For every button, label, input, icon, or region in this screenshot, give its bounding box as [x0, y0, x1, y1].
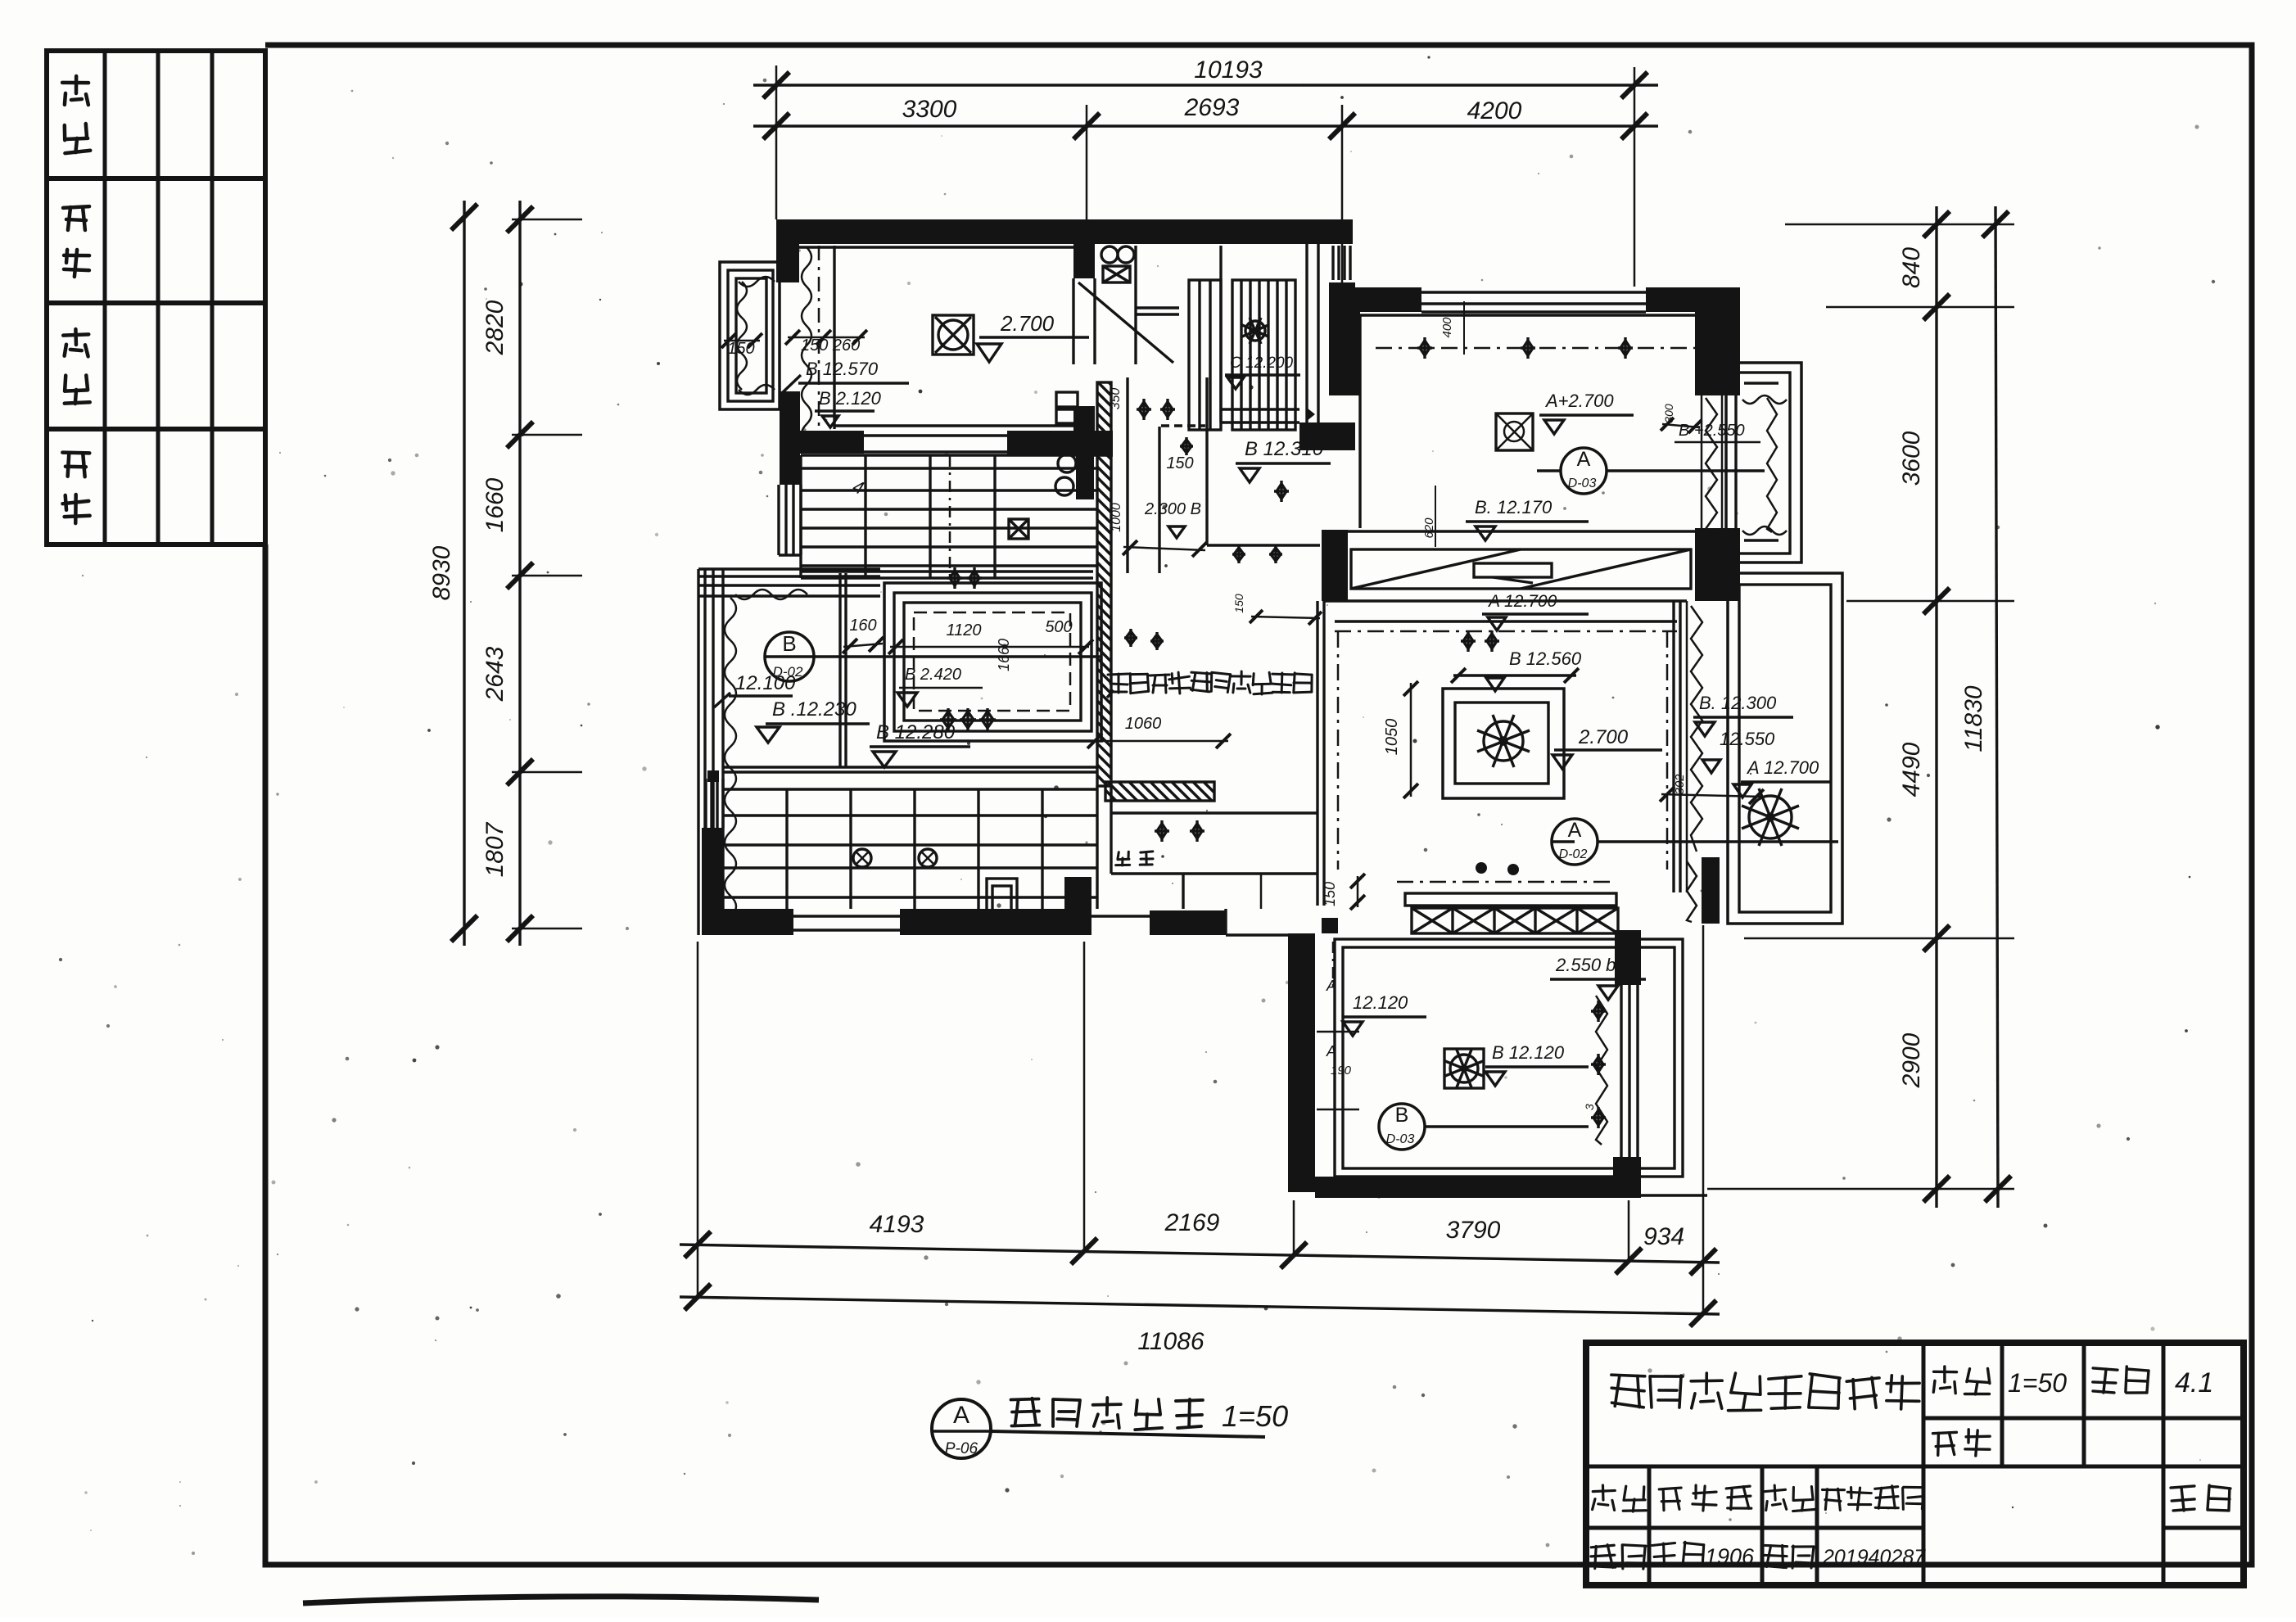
svg-text:12.120: 12.120: [1353, 992, 1408, 1013]
svg-text:P-06: P-06: [945, 1440, 979, 1457]
svg-text:3790: 3790: [1446, 1217, 1501, 1244]
svg-text:C 12.200: C 12.200: [1230, 355, 1294, 372]
svg-text:2169: 2169: [1164, 1209, 1220, 1236]
svg-text:1120: 1120: [946, 621, 981, 639]
svg-text:B +2.550: B +2.550: [1679, 422, 1745, 440]
svg-text:D-03: D-03: [1568, 477, 1597, 490]
svg-text:2.300 B: 2.300 B: [1144, 500, 1201, 518]
svg-text:12.100: 12.100: [735, 672, 796, 694]
svg-text:4490: 4490: [1898, 742, 1925, 797]
svg-text:A: A: [953, 1402, 969, 1429]
svg-text:B 12.570: B 12.570: [806, 359, 879, 379]
svg-text:3: 3: [1583, 1104, 1596, 1110]
svg-text:2693: 2693: [1184, 94, 1240, 121]
svg-text:2643: 2643: [481, 646, 508, 702]
svg-text:8930: 8930: [428, 545, 455, 600]
svg-text:D-02: D-02: [1559, 847, 1588, 861]
svg-text:190: 190: [1331, 1064, 1352, 1078]
svg-text:150: 150: [1166, 454, 1193, 472]
svg-text:1807: 1807: [481, 821, 508, 877]
svg-text:500: 500: [1045, 618, 1072, 636]
svg-text:1050: 1050: [1383, 719, 1401, 756]
svg-text:11830: 11830: [1960, 685, 1987, 752]
svg-text:2900: 2900: [1898, 1032, 1925, 1088]
svg-text:B 12.120: B 12.120: [1492, 1042, 1565, 1063]
svg-text:4200: 4200: [1467, 97, 1522, 124]
svg-text:A: A: [1326, 978, 1336, 994]
svg-text:150: 150: [1232, 594, 1245, 613]
svg-text:4193: 4193: [870, 1211, 924, 1238]
svg-text:160: 160: [849, 617, 876, 635]
svg-text:2.700: 2.700: [1000, 311, 1055, 336]
svg-text:2820: 2820: [481, 300, 508, 355]
svg-text:B: B: [1395, 1104, 1409, 1127]
svg-text:840: 840: [1898, 247, 1925, 288]
svg-text:A: A: [1577, 448, 1591, 471]
svg-text:150 260: 150 260: [801, 337, 860, 355]
svg-text:A 12.700: A 12.700: [1746, 757, 1819, 778]
svg-text:B: B: [782, 631, 796, 656]
svg-text:A: A: [1568, 819, 1582, 842]
svg-text:B 12.560: B 12.560: [1509, 648, 1582, 669]
svg-text:4.1: 4.1: [2175, 1367, 2213, 1398]
svg-text:302: 302: [1673, 774, 1687, 795]
svg-text:B 2.420: B 2.420: [905, 666, 961, 684]
svg-text:1906: 1906: [1705, 1544, 1755, 1569]
svg-text:1=50: 1=50: [1222, 1399, 1288, 1433]
svg-text:11086: 11086: [1137, 1328, 1204, 1355]
svg-text:620: 620: [1422, 517, 1436, 539]
svg-text:1=50: 1=50: [2008, 1368, 2067, 1398]
svg-text:D-03: D-03: [1386, 1132, 1415, 1146]
svg-text:A+2.700: A+2.700: [1544, 391, 1614, 411]
svg-text:400: 400: [1440, 317, 1454, 338]
svg-text:2.550 b: 2.550 b: [1555, 955, 1616, 975]
svg-text:3600: 3600: [1898, 431, 1925, 486]
svg-text:150: 150: [1322, 882, 1338, 906]
svg-text:2.700: 2.700: [1578, 726, 1629, 748]
svg-text:3300: 3300: [902, 96, 957, 123]
svg-text:1060: 1060: [1125, 715, 1162, 733]
svg-text:B 12.310: B 12.310: [1245, 438, 1324, 460]
svg-text:A 12.700: A 12.700: [1487, 592, 1557, 611]
svg-text:A: A: [1326, 1043, 1336, 1059]
svg-text:1660: 1660: [996, 639, 1012, 671]
svg-text:201940287: 201940287: [1822, 1546, 1926, 1569]
svg-text:150: 150: [727, 340, 754, 358]
svg-text:B .12.230: B .12.230: [772, 698, 856, 721]
svg-text:1660: 1660: [481, 477, 508, 532]
svg-text:934: 934: [1643, 1223, 1684, 1250]
svg-text:B 2.120: B 2.120: [819, 388, 882, 409]
svg-text:B. 12.170: B. 12.170: [1475, 497, 1553, 517]
svg-text:10193: 10193: [1194, 56, 1263, 84]
